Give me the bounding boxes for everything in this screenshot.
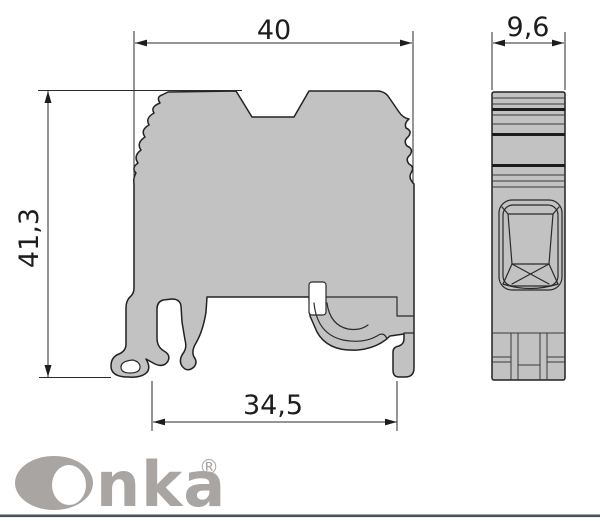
dimension-depth-side: 9,6	[492, 12, 565, 90]
technical-drawing-page: Onka 40	[0, 0, 600, 521]
dimension-label-width-top: 40	[257, 15, 291, 46]
arrowhead	[400, 40, 412, 47]
logo-o-counter	[52, 465, 86, 505]
left-hook-opening	[121, 360, 140, 373]
onka-logo: nka ®	[15, 448, 226, 521]
clip-release-slot	[309, 282, 326, 315]
dimension-label-depth: 9,6	[507, 12, 550, 43]
front-view	[111, 91, 414, 377]
arrowhead	[385, 419, 397, 426]
dimension-label-width-bottom: 34,5	[243, 390, 303, 421]
drawing-canvas: 40 9,6 41,3 34,5 nka ®	[0, 0, 600, 521]
arrowhead	[493, 40, 505, 47]
registered-trademark-symbol: ®	[199, 455, 219, 479]
arrowhead	[153, 419, 165, 426]
dimension-width-bottom: 34,5	[152, 381, 397, 431]
arrowhead	[45, 91, 52, 103]
terminal-body-outline	[111, 91, 414, 377]
footer-rule	[0, 515, 600, 518]
dimension-label-height: 41,3	[14, 208, 45, 268]
arrowhead	[45, 365, 52, 377]
arrowhead	[135, 40, 147, 47]
arrowhead	[552, 40, 564, 47]
side-view	[492, 92, 565, 380]
